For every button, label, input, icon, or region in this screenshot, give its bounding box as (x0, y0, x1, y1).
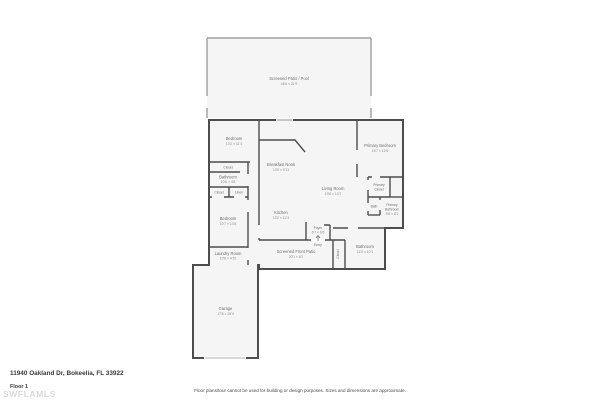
room-dims-kitchen: 13'2 × 12'4 (273, 216, 290, 220)
room-label-closet-top: Closet (223, 166, 232, 170)
room-dims-bathroom-right: 11'5 × 10'1 (357, 250, 373, 254)
room-label-bath: Bath (371, 205, 378, 209)
room-label-laundry: Laundry Room (215, 251, 242, 256)
room-label-bathroom-left: Bathroom (219, 175, 237, 180)
room-dims-breakfast-nook: 13'9 × 9'11 (273, 168, 289, 172)
room-label-bedroom-mid: Bedroom (220, 216, 237, 221)
room-label-linen: Linen (235, 191, 243, 195)
room-label-primary-bedroom: Primary Bedroom (364, 143, 396, 148)
center-floor (259, 120, 357, 240)
room-label-garage: Garage (219, 306, 233, 311)
floor-plan-page: Screened Patio / Pool 44'6 × 21'9 Bedroo… (0, 0, 600, 400)
room-dims-foyer: 6'7 × 6'6 (312, 231, 325, 235)
room-dims-bathroom-left: 10'6 × 4'8 (221, 180, 236, 184)
room-label-bedroom-top: Bedroom (226, 136, 243, 141)
hallway-floor (357, 177, 368, 228)
room-dims-garage: 17'8 × 25'4 (217, 312, 234, 316)
property-address: 11940 Oakland Dr, Bokeelia, FL 33922 (10, 370, 124, 377)
room-dims-patio-pool: 44'6 × 21'9 (281, 82, 298, 86)
room-label-primary-bathroom-1: Primary (386, 203, 398, 207)
room-label-patio-pool: Screened Patio / Pool (269, 76, 309, 81)
room-label-front-patio: Screened Front Patio (277, 249, 316, 254)
room-label-entry: Entry (314, 243, 322, 247)
room-dims-bedroom-top: 13'2 × 11'4 (226, 142, 242, 146)
floor-plan-drawing: Screened Patio / Pool 44'6 × 21'9 Bedroo… (0, 0, 600, 400)
room-label-foyer: Foyer (314, 226, 323, 230)
room-dims-bedroom-mid: 10'7 × 13'6 (220, 222, 237, 226)
room-label-bathroom-right: Bathroom (356, 244, 374, 249)
room-label-closet-vertical: Closet (336, 249, 340, 258)
room-dims-laundry: 10'6 × 4'10 (220, 257, 237, 261)
room-dims-primary-bedroom: 15'7 × 12'6 (372, 149, 389, 153)
room-label-kitchen: Kitchen (274, 210, 288, 215)
room-dims-living-room: 19'8 × 14'7 (325, 192, 342, 196)
disclaimer-text: Floor plans/tour cannot be used for buil… (0, 388, 600, 393)
room-dims-front-patio: 20'1 × 8'2 (289, 255, 304, 259)
room-dims-primary-bathroom: 9'6 × 8'2 (386, 212, 399, 216)
room-label-living-room: Living Room (322, 186, 345, 191)
room-label-primary-closet-2: Closet (374, 188, 383, 192)
room-label-primary-bathroom-2: Bathroom (385, 208, 400, 212)
room-label-breakfast-nook: Breakfast Nook (267, 162, 296, 167)
room-label-primary-closet-1: Primary (373, 183, 385, 187)
room-label-closet-small: Closet (214, 191, 223, 195)
